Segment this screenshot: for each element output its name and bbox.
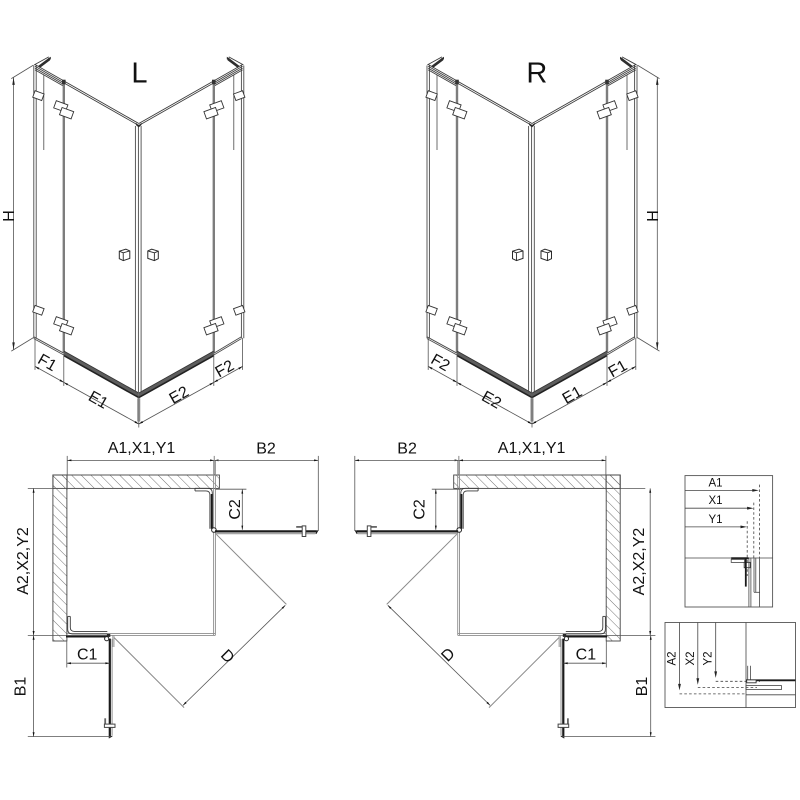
svg-text:C1: C1 xyxy=(77,647,98,664)
svg-text:H: H xyxy=(1,210,18,222)
svg-text:R: R xyxy=(526,58,547,90)
svg-text:B1: B1 xyxy=(634,677,651,697)
svg-text:X1: X1 xyxy=(708,495,722,507)
svg-text:A1,X1,Y1: A1,X1,Y1 xyxy=(498,440,566,457)
svg-text:L: L xyxy=(131,58,147,90)
svg-text:B1: B1 xyxy=(13,677,30,697)
svg-text:A2,X2,Y2: A2,X2,Y2 xyxy=(631,528,648,596)
svg-text:Y1: Y1 xyxy=(708,514,722,526)
svg-text:A1,X1,Y1: A1,X1,Y1 xyxy=(108,440,176,457)
svg-text:A2: A2 xyxy=(667,651,679,665)
svg-text:A1: A1 xyxy=(708,477,722,489)
svg-text:Y2: Y2 xyxy=(703,651,715,665)
svg-text:C2: C2 xyxy=(412,499,429,520)
svg-text:C1: C1 xyxy=(576,647,597,664)
svg-text:H: H xyxy=(645,210,662,222)
svg-text:X2: X2 xyxy=(685,651,697,665)
svg-text:B2: B2 xyxy=(256,441,276,458)
svg-text:C2: C2 xyxy=(227,499,244,520)
svg-text:B2: B2 xyxy=(397,441,417,458)
svg-text:A2,X2,Y2: A2,X2,Y2 xyxy=(15,527,32,595)
